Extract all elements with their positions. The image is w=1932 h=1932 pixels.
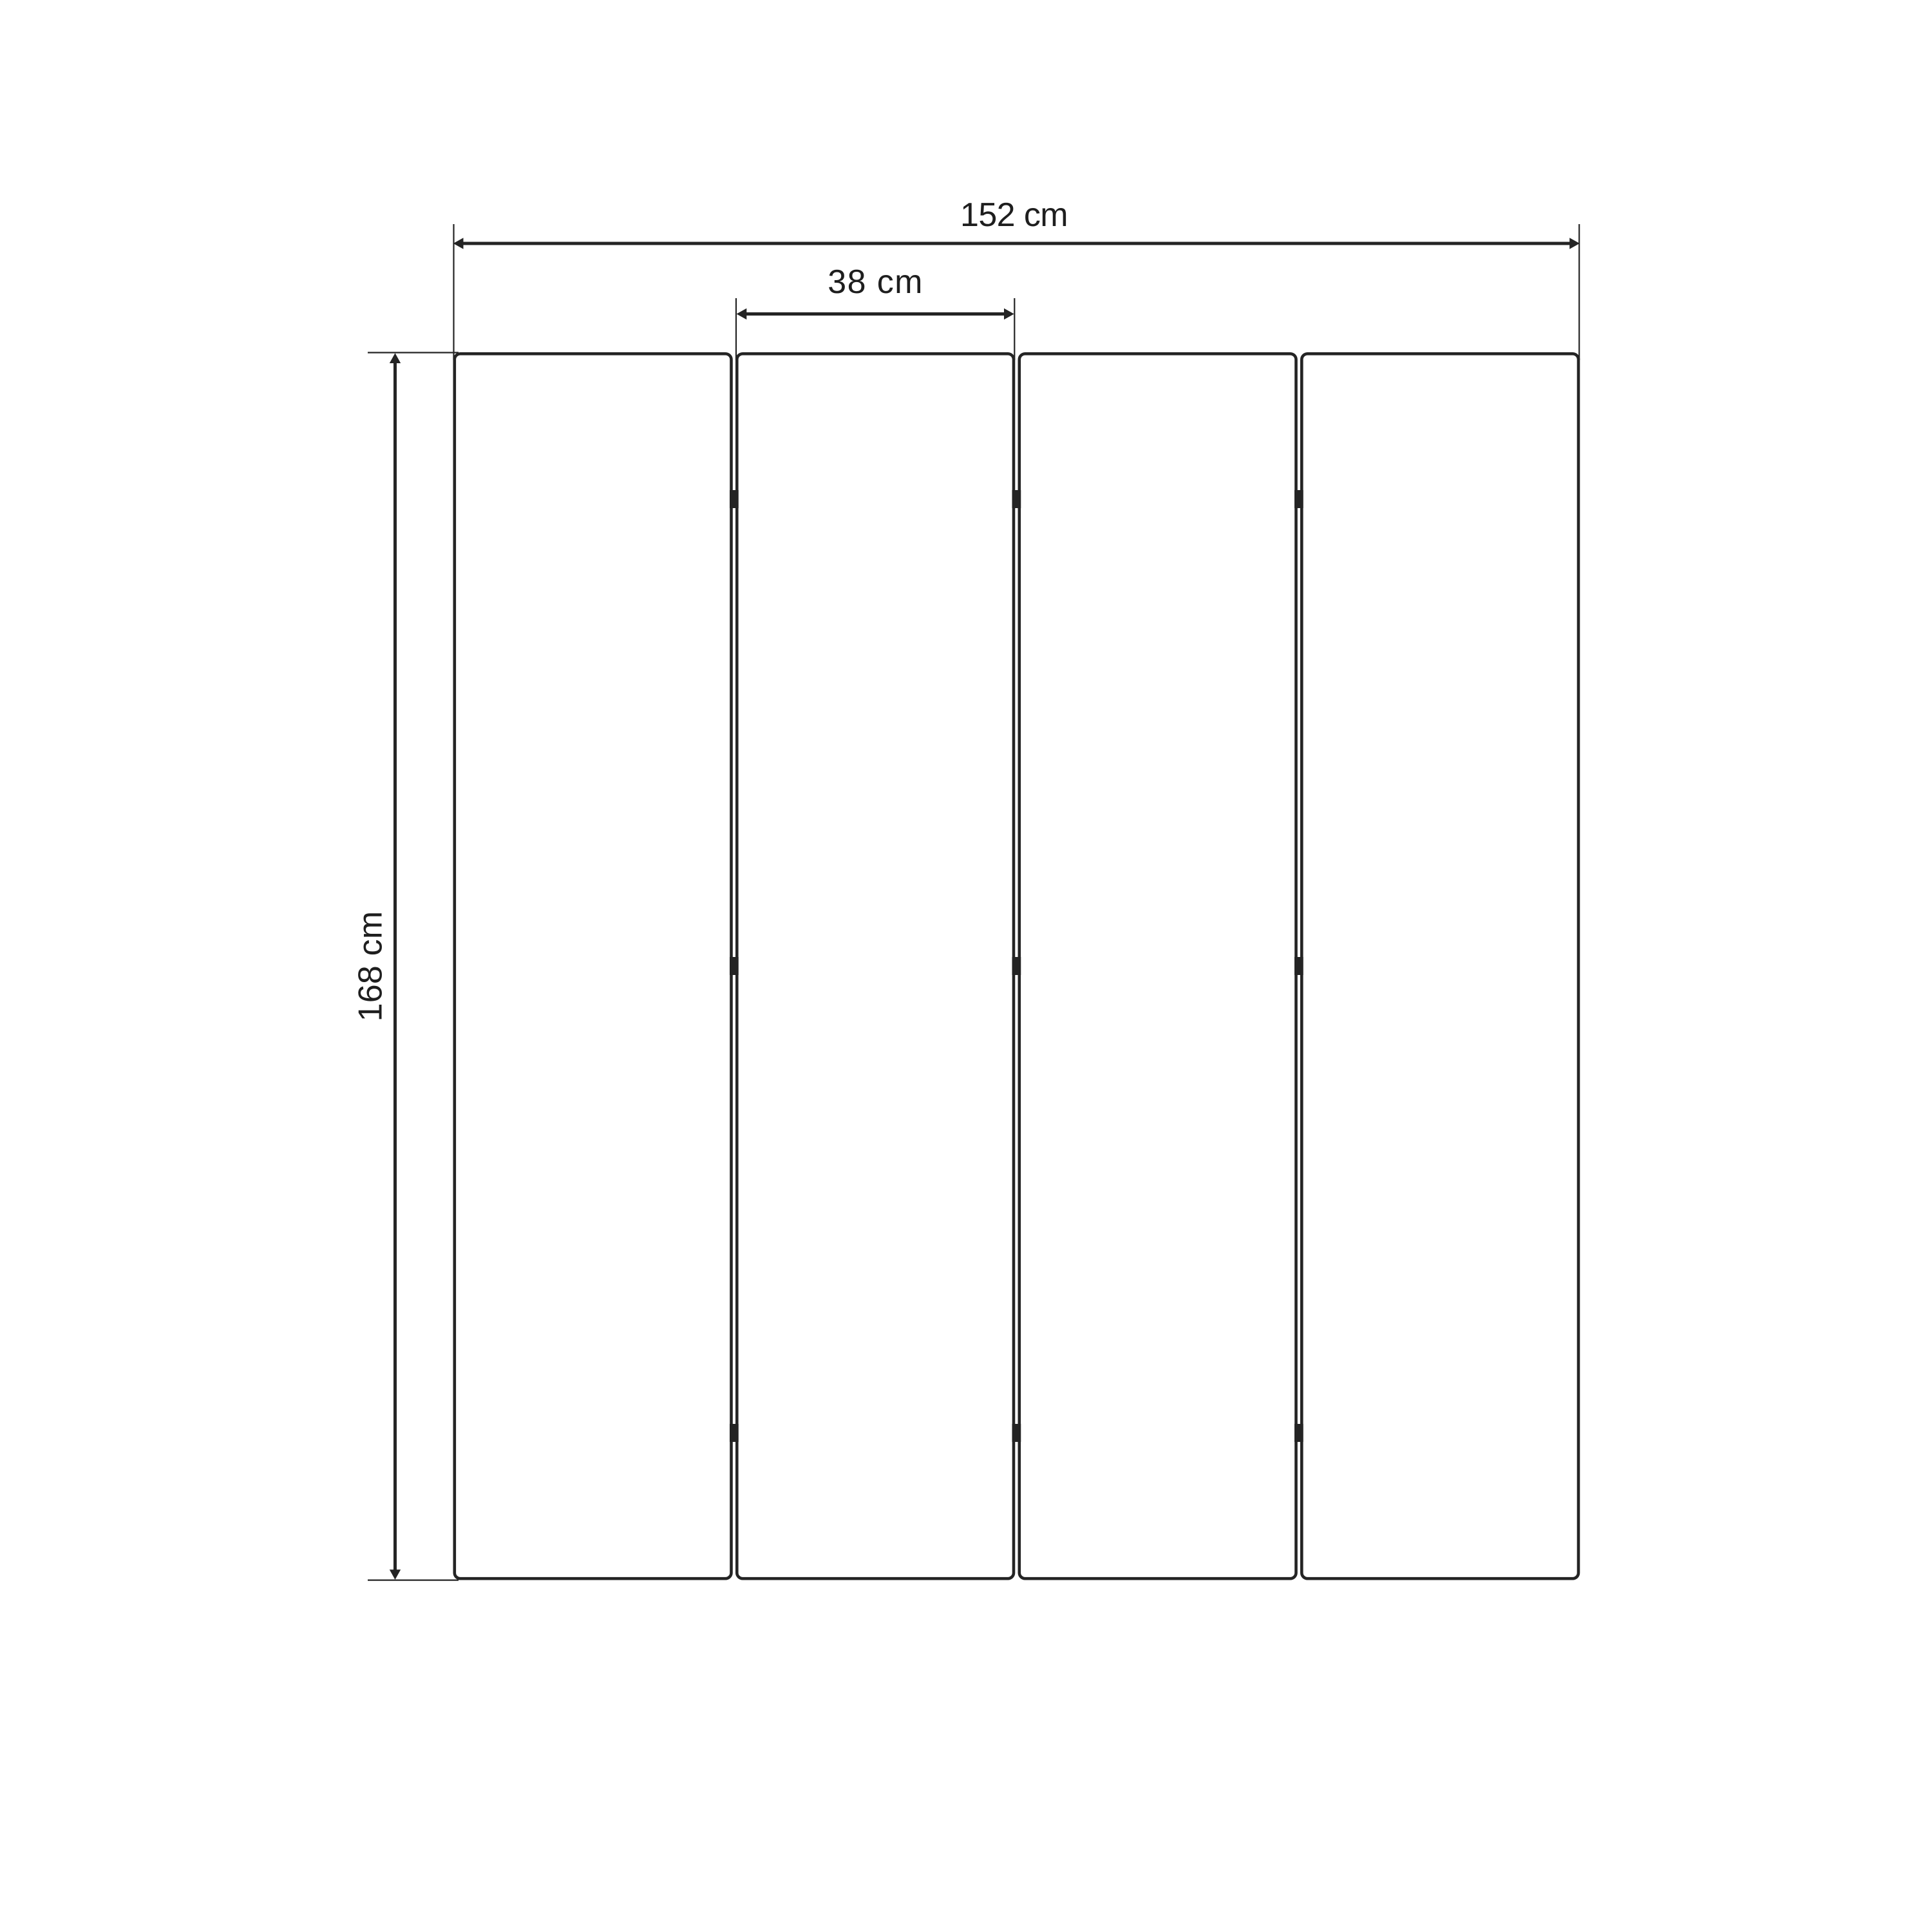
svg-text:152 cm: 152 cm	[960, 196, 1068, 234]
svg-text:168 cm: 168 cm	[352, 911, 390, 1022]
svg-text:38 cm: 38 cm	[828, 263, 923, 301]
